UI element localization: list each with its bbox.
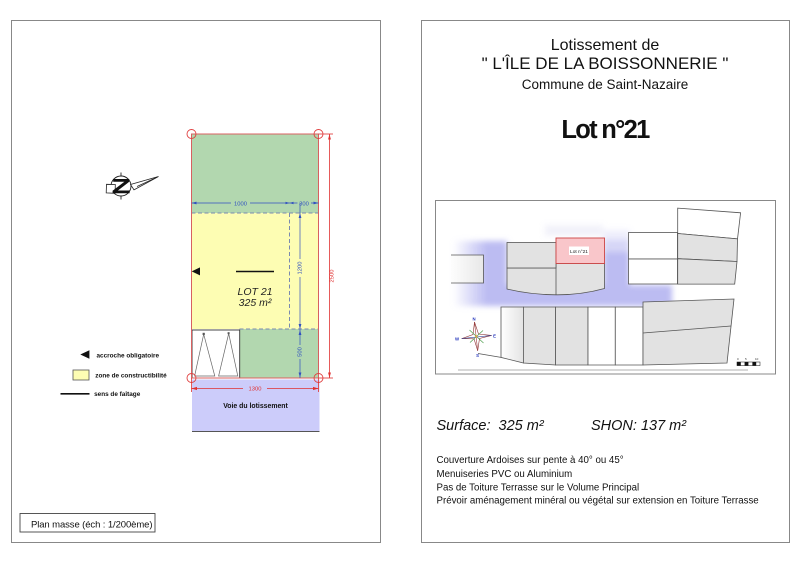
svg-text:Couverture Ardoises sur pente: Couverture Ardoises sur pente à 40° ou 4…	[437, 455, 624, 466]
svg-text:Pas de Toiture Terrasse sur le: Pas de Toiture Terrasse sur le Volume Pr…	[437, 483, 640, 494]
svg-text:1300: 1300	[249, 387, 262, 393]
svg-text:Surface: 325 m²: Surface: 325 m²	[437, 418, 545, 434]
svg-text:Plan masse (éch : 1/200ème): Plan masse (éch : 1/200ème)	[31, 520, 152, 531]
svg-text:1000: 1000	[234, 201, 247, 207]
svg-text:accroche obligatoire: accroche obligatoire	[97, 352, 160, 359]
svg-text:N: N	[472, 317, 475, 322]
svg-text:zone de constructibilité: zone de constructibilité	[95, 373, 167, 380]
svg-text:S: S	[476, 353, 479, 358]
svg-text:Voie du lotissement: Voie du lotissement	[223, 403, 288, 410]
svg-text:500: 500	[298, 347, 304, 357]
svg-text:" L'ÎLE DE LA BOISSONNERIE ": " L'ÎLE DE LA BOISSONNERIE "	[482, 54, 729, 73]
svg-text:Lot n°21: Lot n°21	[570, 249, 588, 255]
svg-text:325 m²: 325 m²	[239, 297, 272, 309]
svg-text:SHON: 137 m²: SHON: 137 m²	[591, 418, 687, 434]
svg-text:300: 300	[299, 201, 309, 207]
svg-text:Commune de Saint-Nazaire: Commune de Saint-Nazaire	[522, 77, 689, 92]
svg-text:Prévoir aménagement minéral ou: Prévoir aménagement minéral ou végétal s…	[437, 496, 759, 507]
svg-text:E: E	[493, 334, 496, 339]
svg-text:Menuiseries PVC ou Aluminium: Menuiseries PVC ou Aluminium	[437, 469, 573, 480]
svg-text:1200: 1200	[298, 262, 304, 275]
svg-text:Lotissement de: Lotissement de	[551, 37, 660, 54]
svg-text:Lot n°21: Lot n°21	[561, 116, 650, 144]
svg-text:10: 10	[755, 357, 759, 361]
svg-text:2500: 2500	[330, 270, 336, 283]
svg-text:sens de faîtage: sens de faîtage	[94, 391, 141, 398]
